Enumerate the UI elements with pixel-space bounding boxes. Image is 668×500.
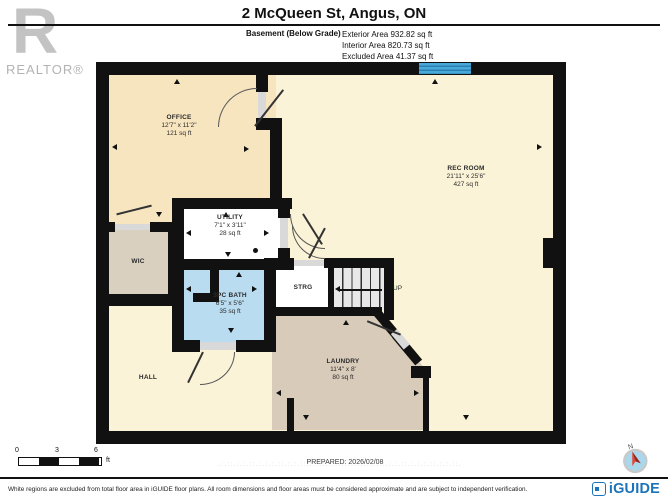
- scale-3: 3: [55, 447, 59, 454]
- scale-seg: [19, 458, 39, 465]
- stairs-direction-line: [340, 289, 382, 291]
- compass-icon: N: [617, 440, 653, 476]
- measure-arrow-icon: [303, 415, 309, 420]
- laundry-label: LAUNDRY 11'4" x 8' 80 sq ft: [298, 358, 388, 382]
- strg-door-threshold: [294, 260, 324, 266]
- realtor-logo-label: REALTOR®: [6, 62, 84, 77]
- scale-seg: [59, 458, 79, 465]
- strg-wall-top-b: [324, 258, 392, 268]
- utility-wall-right-a: [278, 198, 290, 218]
- measure-arrow-icon: [537, 144, 542, 150]
- wall-top: [96, 62, 566, 75]
- bath-door-threshold: [200, 342, 236, 350]
- bath-area: 35 sq ft: [185, 308, 275, 316]
- wall-right-notch: [543, 238, 566, 268]
- bath-dims: 6'5" x 5'6": [185, 300, 275, 308]
- iguide-logo-icon: [592, 482, 606, 496]
- measure-arrow-icon: [414, 390, 419, 396]
- rec-dims: 21'11" x 25'6": [421, 173, 511, 181]
- office-wall-lower: [270, 126, 282, 202]
- wall-left: [96, 62, 109, 444]
- egress-window: [419, 63, 471, 74]
- utility-door-threshold: [280, 218, 288, 248]
- measure-arrow-icon: [276, 390, 281, 396]
- header-divider: [8, 24, 660, 26]
- floor-drain-icon: [253, 248, 258, 253]
- bath-wall-bottom-b: [236, 340, 276, 352]
- laundry-name: LAUNDRY: [298, 358, 388, 366]
- bath-wall-bottom-a: [172, 340, 200, 352]
- laundry-dims: 11'4" x 8': [298, 366, 388, 374]
- footer-disclaimer: White regions are excluded from total fl…: [8, 486, 527, 493]
- utility-name: UTILITY: [185, 214, 275, 222]
- bath-label: 3PC BATH 6'5" x 5'6" 35 sq ft: [185, 292, 275, 316]
- measure-arrow-icon: [228, 328, 234, 333]
- hall-name: HALL: [118, 374, 178, 382]
- laundry-wall-top: [264, 307, 382, 316]
- hall-laundry-stub: [287, 398, 294, 431]
- measure-arrow-icon: [343, 320, 349, 325]
- measure-arrow-icon: [174, 79, 180, 84]
- bath-wall-left: [172, 260, 184, 352]
- footer-divider: [0, 477, 668, 479]
- stairs-arrow-icon: [335, 286, 340, 292]
- laundry-wall-right: [423, 376, 429, 431]
- utility-wall-top: [172, 198, 292, 209]
- scale-bar: [18, 457, 102, 466]
- up-text: UP: [393, 285, 413, 293]
- floor-label: Basement (Below Grade): [246, 29, 341, 38]
- floorplan-canvas: OFFICE 12'7" x 11'2" 121 sq ft REC ROOM …: [96, 62, 566, 444]
- wall-bottom: [96, 431, 566, 444]
- wic-name: WIC: [108, 258, 168, 266]
- measure-arrow-icon: [156, 212, 162, 217]
- utility-label: UTILITY 7'1" x 3'11" 28 sq ft: [185, 214, 275, 238]
- rec-name: REC ROOM: [421, 165, 511, 173]
- office-wall-stub: [256, 75, 268, 92]
- strg-wall-top-a: [264, 258, 294, 268]
- wic-label: WIC: [108, 258, 168, 266]
- interior-area: Interior Area 820.73 sq ft: [342, 40, 433, 51]
- scale-seg: [39, 458, 59, 465]
- measure-arrow-icon: [463, 415, 469, 420]
- office-name: OFFICE: [134, 114, 224, 122]
- strg-label: STRG: [273, 284, 333, 292]
- office-dims: 12'7" x 11'2": [134, 122, 224, 130]
- up-label: UP: [393, 285, 413, 293]
- office-area: 121 sq ft: [134, 130, 224, 138]
- utility-area: 28 sq ft: [185, 230, 275, 238]
- measure-arrow-icon: [112, 144, 117, 150]
- scale-6: 6: [94, 447, 98, 454]
- measure-arrow-icon: [236, 272, 242, 277]
- wic-wall-bottom: [96, 294, 180, 306]
- scale-seg: [79, 458, 99, 465]
- rec-area: 427 sq ft: [421, 181, 511, 189]
- hall-label: HALL: [118, 374, 178, 382]
- page-title: 2 McQueen St, Angus, ON: [0, 5, 668, 22]
- wic-door-threshold: [115, 224, 150, 230]
- bath-name: 3PC BATH: [185, 292, 275, 300]
- measure-arrow-icon: [432, 79, 438, 84]
- prepared-date: PREPARED: 2026/02/08: [239, 459, 451, 466]
- rec-room-label: REC ROOM 21'11" x 25'6" 427 sq ft: [421, 165, 511, 189]
- exterior-area: Exterior Area 932.82 sq ft: [342, 29, 433, 40]
- measure-arrow-icon: [244, 146, 249, 152]
- scale-0: 0: [15, 447, 19, 454]
- measure-arrow-icon: [225, 252, 231, 257]
- compass-n-label: N: [627, 443, 634, 451]
- office-label: OFFICE 12'7" x 11'2" 121 sq ft: [134, 114, 224, 138]
- laundry-area: 80 sq ft: [298, 374, 388, 382]
- iguide-logo: iGUIDE: [592, 481, 660, 497]
- iguide-logo-text: iGUIDE: [609, 481, 660, 497]
- area-summary: Exterior Area 932.82 sq ft Interior Area…: [342, 29, 433, 62]
- utility-dims: 7'1" x 3'11": [185, 222, 275, 230]
- scale-unit: ft: [106, 457, 110, 464]
- excluded-area: Excluded Area 41.37 sq ft: [342, 51, 433, 62]
- floorplan-page: R REALTOR® 2 McQueen St, Angus, ON Basem…: [0, 0, 668, 500]
- strg-name: STRG: [273, 284, 333, 292]
